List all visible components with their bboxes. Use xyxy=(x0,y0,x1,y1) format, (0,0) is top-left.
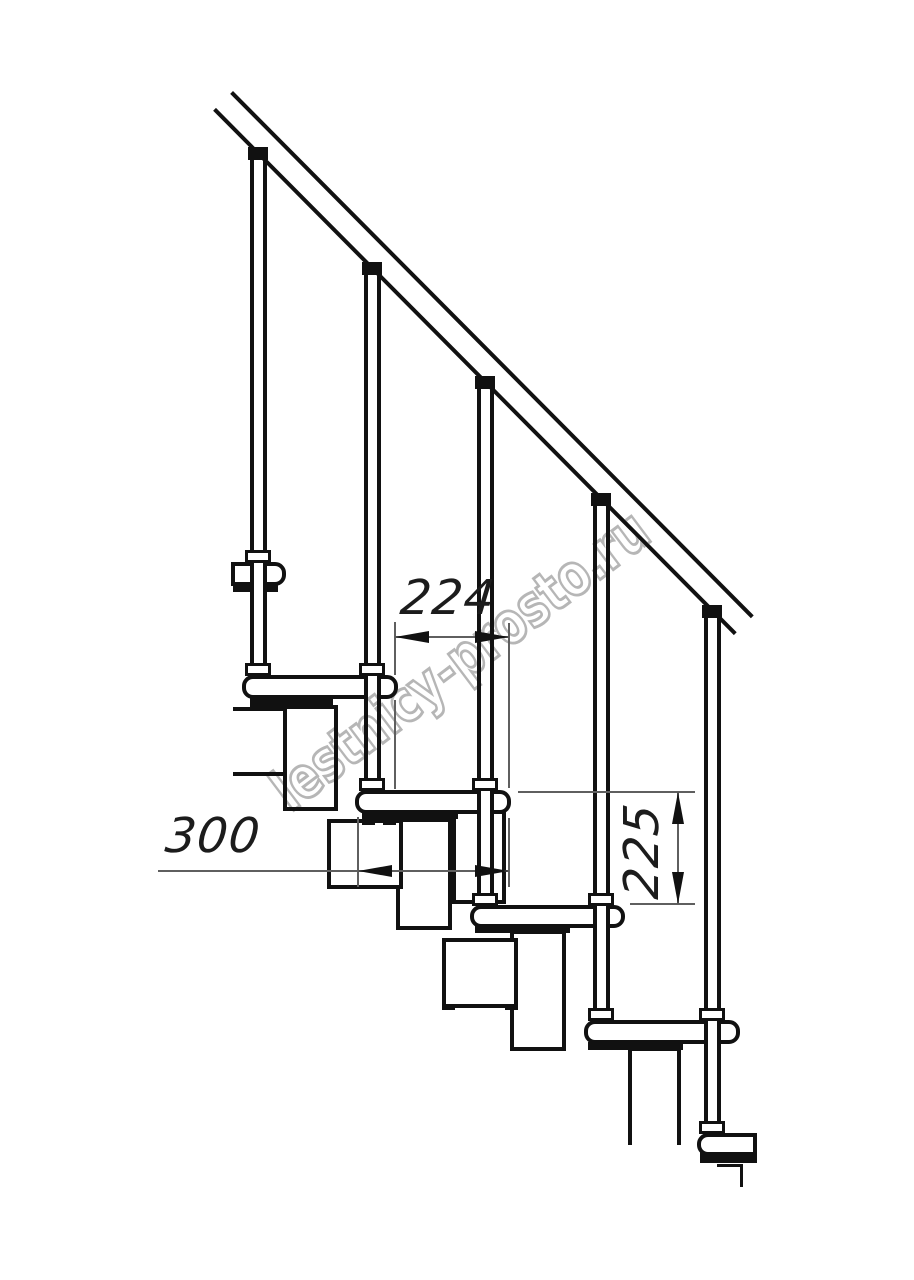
staircase-drawing: 224 300 225 lestnicy-prosto.ru xyxy=(0,0,914,1280)
bottom-step-line-v xyxy=(740,1164,743,1187)
module-column-under-tread-4 xyxy=(510,930,566,1051)
baluster-1-collar xyxy=(245,550,271,563)
baluster-1-rail-connector xyxy=(248,147,268,160)
baluster-1-base xyxy=(245,663,271,676)
module-column-under-tread-5 xyxy=(628,1047,681,1145)
dim-225-label: 225 xyxy=(613,778,671,924)
baluster-3-base xyxy=(472,893,498,906)
baluster-3-rail-connector xyxy=(475,376,495,389)
baluster-2-rail-connector xyxy=(362,262,382,275)
module-foot xyxy=(505,1004,518,1010)
module-box-under-tread-4 xyxy=(442,938,518,1008)
baluster-3-collar xyxy=(472,778,498,791)
dim-225-arrow-up-icon xyxy=(672,792,684,824)
baluster-1 xyxy=(250,158,267,675)
tread-5-plate xyxy=(588,1042,683,1050)
module-foot xyxy=(442,1004,455,1010)
baluster-5-collar xyxy=(699,1008,725,1021)
baluster-5-rail-connector xyxy=(702,605,722,618)
baluster-5 xyxy=(704,616,721,1133)
baluster-4-collar xyxy=(588,893,614,906)
baluster-5-base xyxy=(699,1121,725,1134)
tread-6-plate xyxy=(700,1152,757,1163)
dim-225-arrow-down-icon xyxy=(672,872,684,904)
dim-300-arrow-right-icon xyxy=(475,865,509,877)
module-column-under-tread-3-rear xyxy=(396,818,452,930)
dim-300-arrow-left-icon xyxy=(358,865,392,877)
baluster-4-base xyxy=(588,1008,614,1021)
tread-4-plate xyxy=(475,925,570,933)
